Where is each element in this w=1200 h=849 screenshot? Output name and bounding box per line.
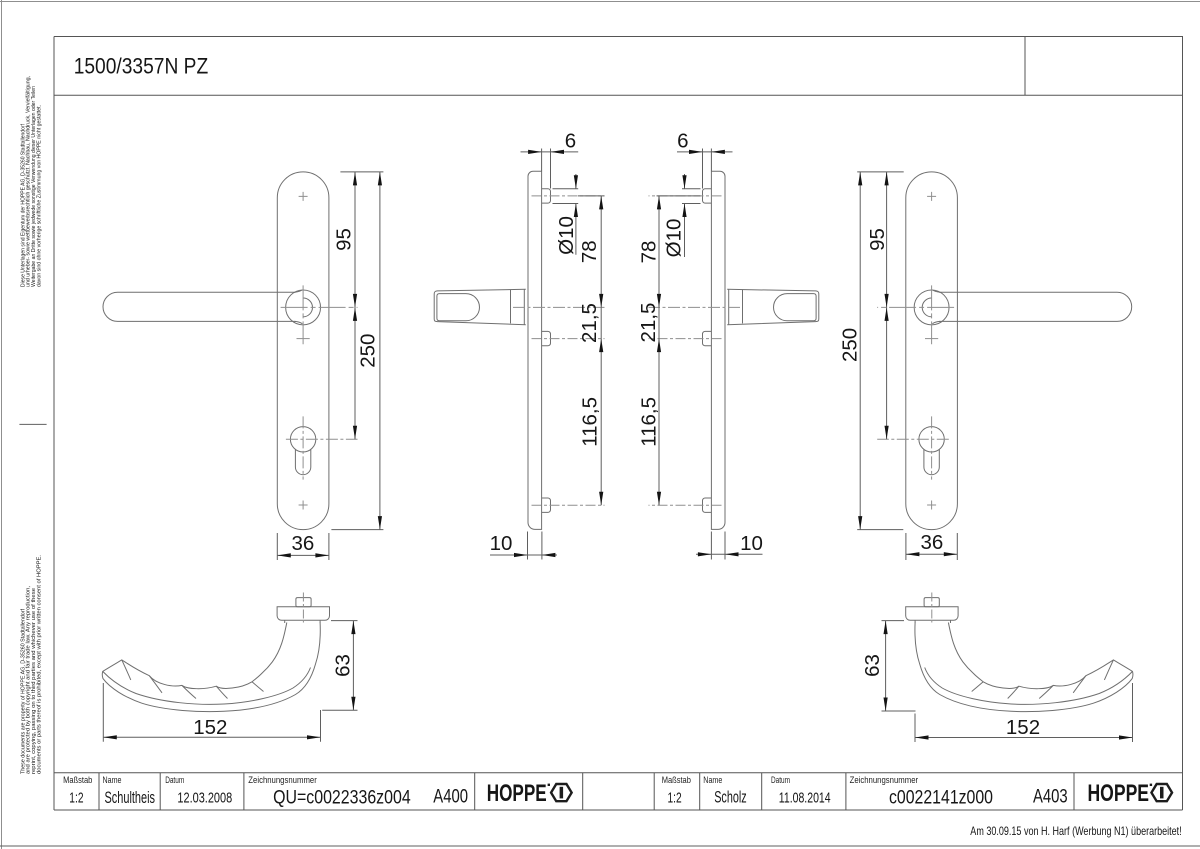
svg-text:1:2: 1:2	[668, 789, 682, 806]
svg-text:12.03.2008: 12.03.2008	[177, 789, 232, 806]
svg-text:1:2: 1:2	[69, 789, 83, 806]
svg-text:6: 6	[677, 129, 688, 152]
svg-text:95: 95	[333, 228, 356, 251]
svg-text:Datum: Datum	[771, 775, 790, 785]
svg-text:63: 63	[861, 654, 884, 677]
svg-text:10: 10	[740, 532, 763, 555]
svg-text:documents or parts thereof is: documents or parts thereof is prohibited…	[36, 555, 42, 774]
svg-text:Ø10: Ø10	[663, 219, 686, 258]
svg-text:HOPPE: HOPPE	[487, 780, 547, 807]
svg-text:152: 152	[1006, 716, 1040, 739]
svg-text:21,5: 21,5	[578, 303, 601, 343]
svg-text:davon sind ohne vorherige schr: davon sind ohne vorherige schriftliche Z…	[36, 105, 42, 287]
svg-text:10: 10	[490, 532, 513, 555]
svg-text:Datum: Datum	[165, 775, 184, 785]
svg-text:Zeichnungsnummer: Zeichnungsnummer	[248, 775, 316, 785]
svg-text:Zeichnungsnummer: Zeichnungsnummer	[850, 775, 919, 785]
svg-text:Maßstab: Maßstab	[63, 775, 92, 785]
svg-text:63: 63	[332, 654, 355, 677]
svg-text:11.08.2014: 11.08.2014	[779, 789, 831, 806]
svg-text:QU=c0022336z004: QU=c0022336z004	[273, 787, 411, 808]
svg-text:1500/3357N PZ: 1500/3357N PZ	[74, 54, 209, 79]
svg-text:A403: A403	[1033, 786, 1068, 807]
svg-text:36: 36	[920, 531, 943, 554]
svg-text:Schultheis: Schultheis	[105, 789, 156, 807]
svg-text:Am 30.09.15 von H. Harf (Werbu: Am 30.09.15 von H. Harf (Werbung N1) übe…	[970, 824, 1181, 838]
svg-text:c0022141z000: c0022141z000	[889, 787, 993, 808]
svg-text:6: 6	[565, 129, 576, 152]
svg-text:A400: A400	[433, 786, 468, 807]
svg-text:36: 36	[291, 532, 314, 555]
svg-text:250: 250	[838, 328, 861, 362]
svg-text:250: 250	[357, 334, 380, 368]
svg-text:Name: Name	[703, 775, 722, 785]
svg-text:152: 152	[193, 716, 227, 739]
svg-text:78: 78	[578, 240, 601, 263]
svg-text:Ø10: Ø10	[555, 216, 578, 255]
svg-text:Name: Name	[103, 775, 122, 785]
svg-text:21,5: 21,5	[637, 303, 660, 343]
svg-text:Maßstab: Maßstab	[662, 775, 691, 785]
svg-text:HOPPE: HOPPE	[1088, 780, 1150, 807]
svg-text:Scholz: Scholz	[714, 788, 747, 806]
svg-text:95: 95	[866, 228, 889, 251]
svg-text:116,5: 116,5	[638, 397, 661, 447]
svg-text:116,5: 116,5	[579, 397, 602, 447]
svg-text:78: 78	[638, 241, 661, 264]
